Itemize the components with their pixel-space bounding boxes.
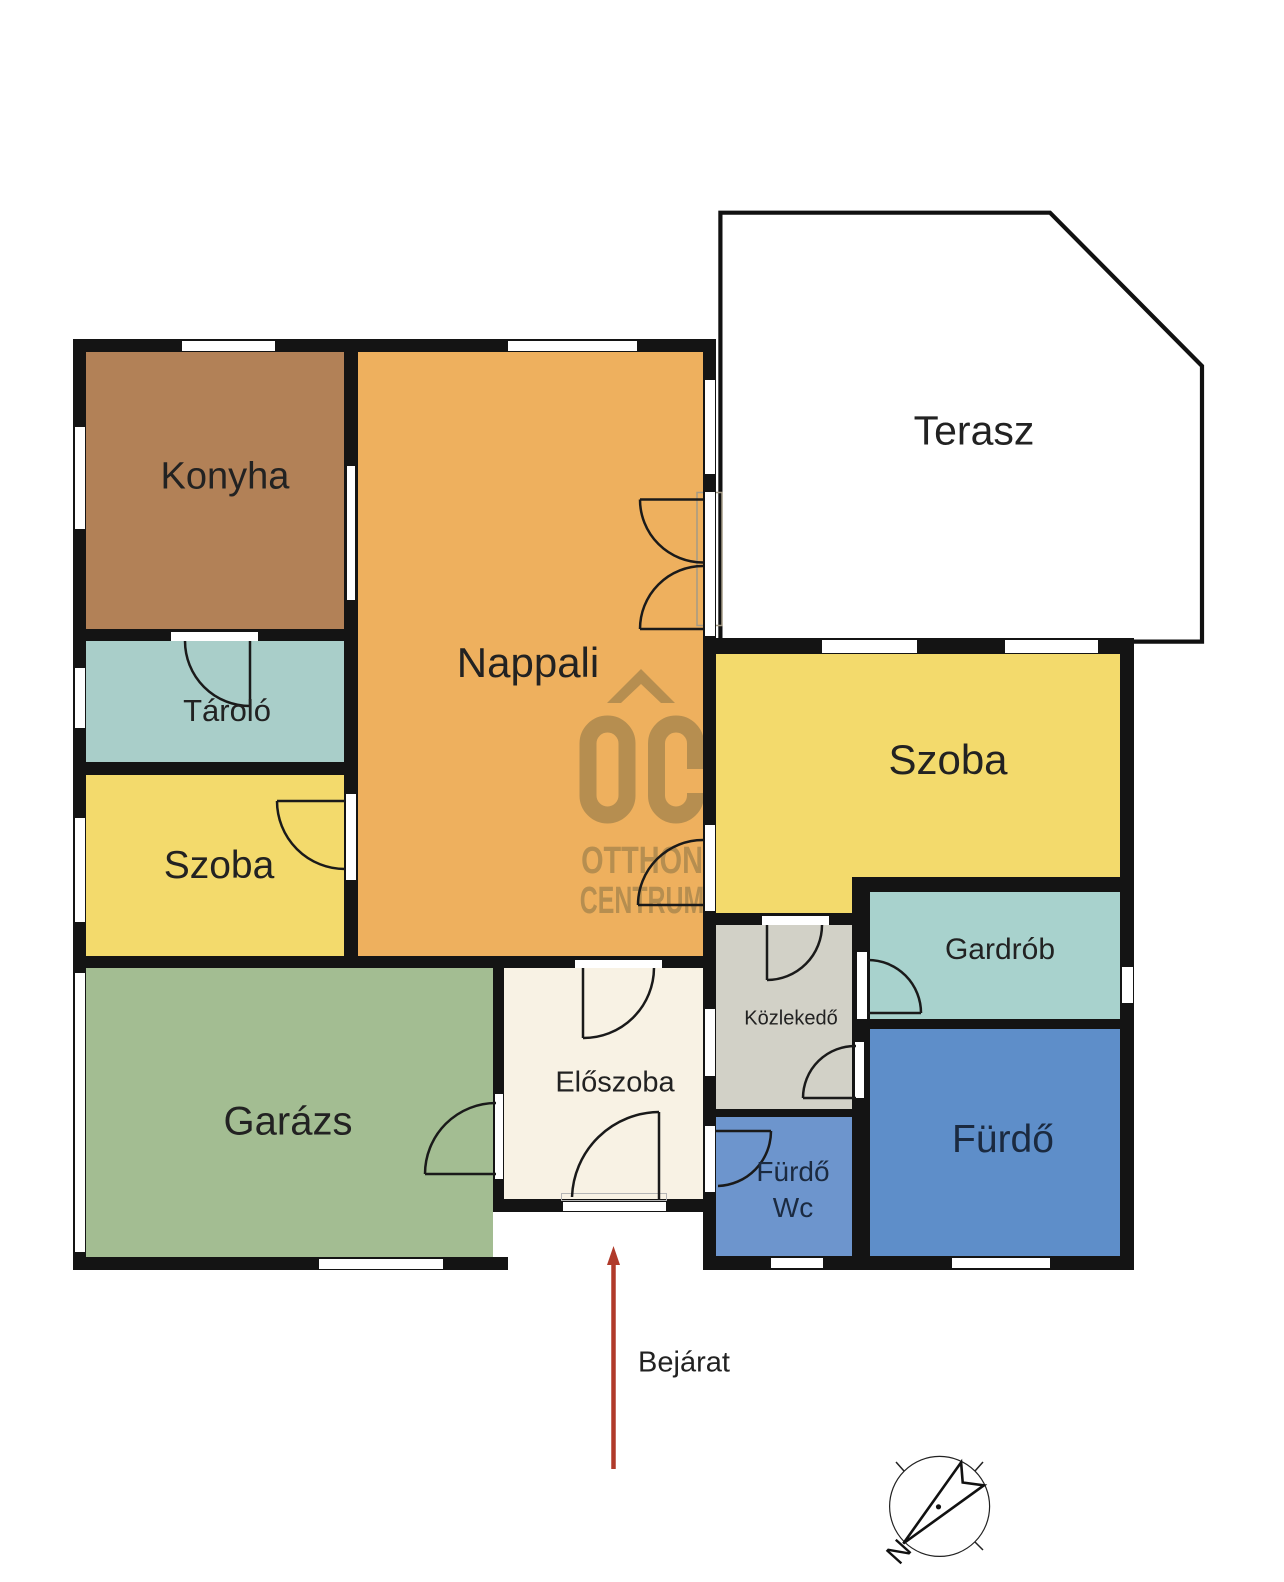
svg-text:N: N	[880, 1534, 918, 1571]
